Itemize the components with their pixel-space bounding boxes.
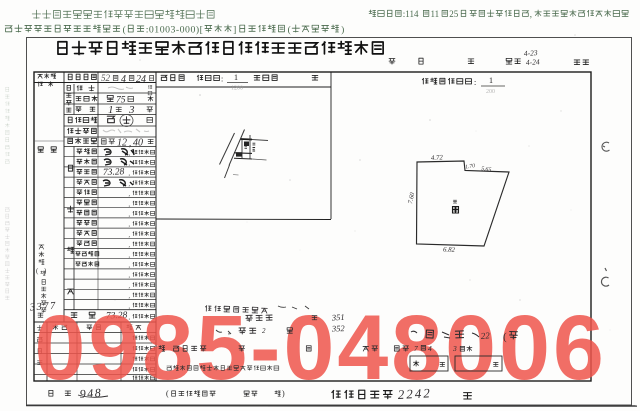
svg-text:5.65: 5.65: [481, 166, 492, 173]
svg-text:4: 4: [121, 74, 126, 85]
svg-text:352: 352: [331, 323, 346, 333]
svg-text:1: 1: [489, 76, 493, 85]
svg-text:351: 351: [331, 312, 345, 323]
svg-text:52: 52: [101, 73, 111, 83]
svg-text:,: ,: [129, 222, 131, 228]
svg-text:,: ,: [129, 151, 131, 157]
svg-text:4.72: 4.72: [431, 154, 444, 162]
svg-text:25: 25: [449, 9, 459, 19]
svg-text:,: ,: [129, 202, 131, 208]
svg-text:,: ,: [530, 9, 532, 19]
svg-text:,: ,: [129, 243, 131, 249]
svg-text:6.82: 6.82: [443, 247, 456, 254]
svg-text:,: ,: [129, 263, 131, 269]
svg-text:]: ]: [233, 26, 236, 36]
svg-text:): ): [282, 389, 285, 398]
svg-text:0985-048006: 0985-048006: [35, 297, 607, 399]
svg-text:75: 75: [116, 96, 126, 106]
svg-text::01003-000)[: :01003-000)[: [146, 25, 204, 36]
svg-text:11: 11: [431, 9, 440, 19]
svg-text:): ): [44, 267, 47, 275]
svg-text:,: ,: [129, 212, 131, 218]
svg-text:,: ,: [129, 232, 131, 238]
svg-text:73.28: 73.28: [103, 167, 125, 178]
svg-text::: :: [221, 75, 223, 84]
svg-text:22: 22: [480, 330, 490, 341]
svg-text:3: 3: [452, 344, 457, 353]
svg-text:4-24: 4-24: [526, 57, 540, 67]
svg-text:2242: 2242: [397, 385, 432, 402]
svg-text:,: ,: [129, 171, 131, 177]
svg-text:200: 200: [486, 89, 495, 95]
svg-text:(: (: [36, 267, 39, 275]
svg-text:): ): [341, 25, 344, 36]
svg-text:,: ,: [228, 327, 230, 336]
svg-text:(: (: [123, 25, 126, 36]
svg-text:12: 12: [117, 138, 127, 149]
svg-text:,: ,: [129, 253, 131, 259]
svg-text:,: ,: [129, 273, 131, 279]
svg-text:(: (: [503, 331, 507, 343]
svg-text:(: (: [166, 389, 169, 398]
svg-text::114: :114: [403, 9, 419, 19]
svg-text:1: 1: [234, 73, 238, 82]
svg-text:,: ,: [129, 283, 131, 289]
svg-text:(: (: [288, 25, 291, 36]
svg-text:1.70: 1.70: [465, 163, 476, 170]
svg-text:7.60: 7.60: [407, 191, 416, 204]
svg-text:7: 7: [414, 344, 418, 353]
svg-text:3: 3: [128, 104, 135, 116]
svg-text::: :: [474, 78, 476, 87]
svg-text:4: 4: [428, 344, 432, 353]
svg-text:40: 40: [133, 138, 143, 149]
svg-text:1200: 1200: [231, 86, 243, 92]
svg-text:948: 948: [79, 385, 102, 401]
svg-text:2: 2: [262, 327, 266, 335]
svg-text:,: ,: [129, 138, 131, 148]
svg-text:1: 1: [108, 104, 114, 116]
svg-text:24: 24: [136, 74, 146, 85]
svg-text:,: ,: [129, 192, 131, 198]
